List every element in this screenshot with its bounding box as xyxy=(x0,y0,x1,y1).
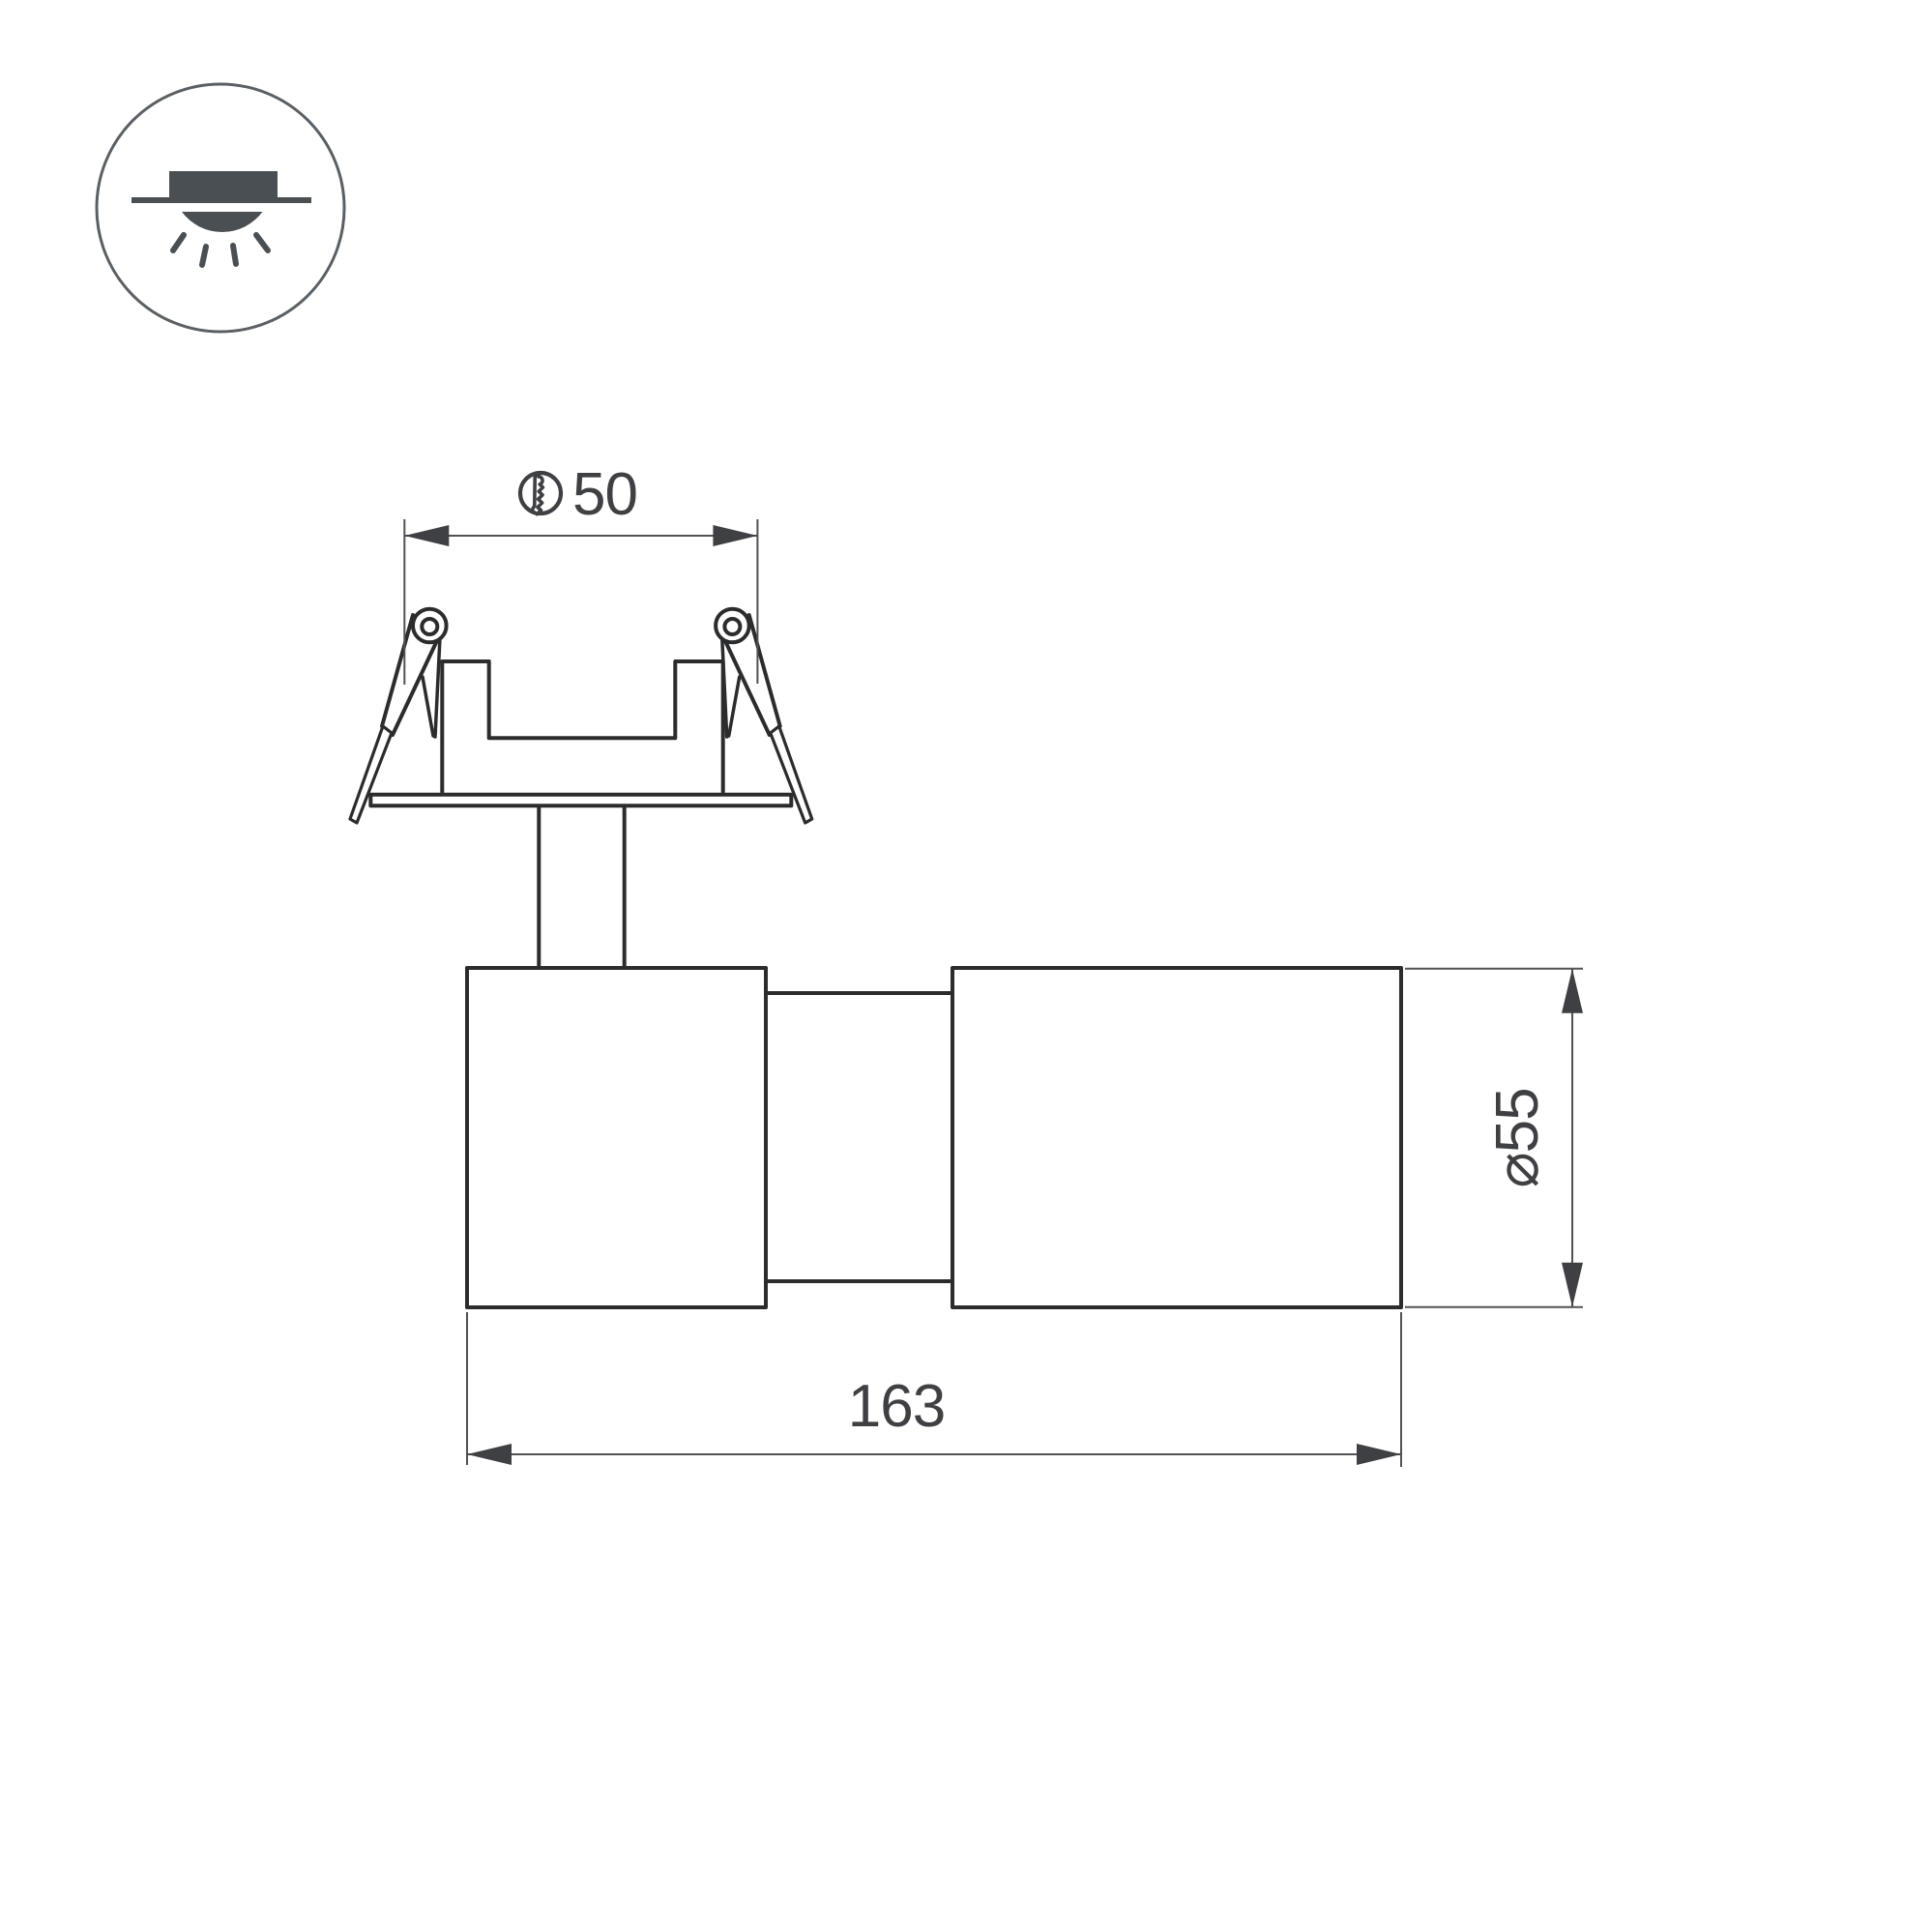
fixture-body xyxy=(467,968,1401,1307)
body-middle-joint xyxy=(766,993,952,1281)
body-rear-cylinder xyxy=(467,968,766,1307)
light-rays-icon xyxy=(173,235,268,265)
spring-clip-left xyxy=(350,609,447,823)
cutout-hole-icon xyxy=(513,468,568,522)
spring-clip-right xyxy=(716,609,812,823)
swivel-stem xyxy=(539,805,624,968)
diameter-dimension-label: ⌀55 xyxy=(1488,1032,1548,1244)
recessed-cup xyxy=(442,661,722,795)
length-dimension-label: 163 xyxy=(809,1377,983,1437)
mounting-bracket xyxy=(370,661,791,968)
cutout-dimension-label: 50 xyxy=(513,466,637,524)
body-front-cylinder xyxy=(952,968,1401,1307)
trim-flange xyxy=(370,795,791,806)
cutout-value: 50 xyxy=(572,466,637,524)
recessed-downlight-icon xyxy=(97,84,344,332)
drawing-linework xyxy=(0,0,1932,1932)
product-dimension-drawing: 50 163 ⌀55 xyxy=(0,0,1932,1932)
